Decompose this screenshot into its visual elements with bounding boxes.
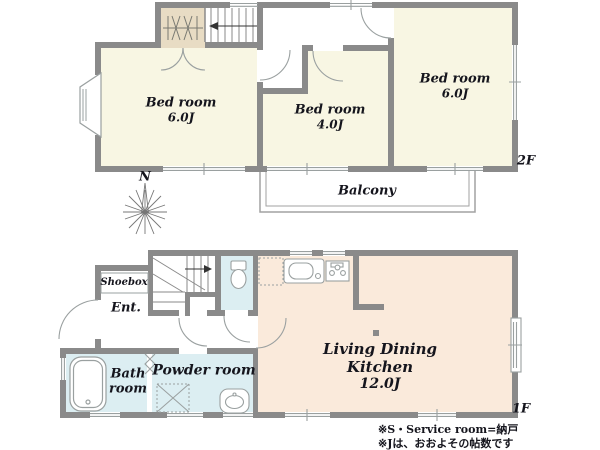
- stairs-2f-arrow: [209, 22, 218, 30]
- floor-plan: Bed room 6.0J Bed room 4.0J Bed room 6.0…: [0, 0, 600, 450]
- pillar: [373, 330, 379, 336]
- powder-room-label: Powder room: [152, 363, 255, 380]
- bay-window: [80, 73, 101, 137]
- bathtub-icon: [70, 357, 106, 411]
- room-size: 6.0J: [146, 111, 217, 125]
- compass-icon: [123, 183, 167, 234]
- bedroom-left-label: Bed room 6.0J: [146, 95, 217, 124]
- ldk-size: 12.0J: [323, 376, 437, 393]
- compass-north-label: N: [139, 169, 151, 184]
- entrance-label: Ent.: [111, 300, 141, 315]
- bathroom-line1: Bath: [109, 367, 147, 382]
- room-name: Bed room: [420, 71, 491, 86]
- kitchen-sink-icon: [284, 259, 324, 283]
- ldk-line2: Kitchen: [323, 359, 437, 377]
- ldk-label: Living Dining Kitchen 12.0J: [323, 341, 437, 393]
- stove-icon: [326, 261, 349, 281]
- bedroom-middle-label: Bed room 4.0J: [295, 102, 366, 131]
- powder-sink-icon: [220, 389, 249, 413]
- balcony-label: Balcony: [338, 183, 396, 198]
- room-size: 6.0J: [420, 87, 491, 101]
- footnote-tatami-count: ※Jは、おおよその帖数です: [378, 435, 513, 450]
- floor2-label: 2F: [517, 153, 535, 168]
- ldk-line1: Living Dining: [323, 341, 437, 359]
- floor1-label: 1F: [512, 401, 530, 416]
- toilet-icon: [231, 261, 246, 289]
- room-size: 4.0J: [295, 118, 366, 132]
- room-name: Bed room: [146, 95, 217, 110]
- bathroom-label: Bath room: [109, 367, 147, 398]
- floor-plan-drawing: [0, 0, 600, 450]
- bathroom-line2: room: [109, 382, 147, 397]
- bedroom-right-label: Bed room 6.0J: [420, 71, 491, 100]
- room-name: Bed room: [295, 102, 366, 117]
- stairs-2f: [211, 8, 258, 42]
- shoebox-label: Shoebox: [100, 277, 147, 289]
